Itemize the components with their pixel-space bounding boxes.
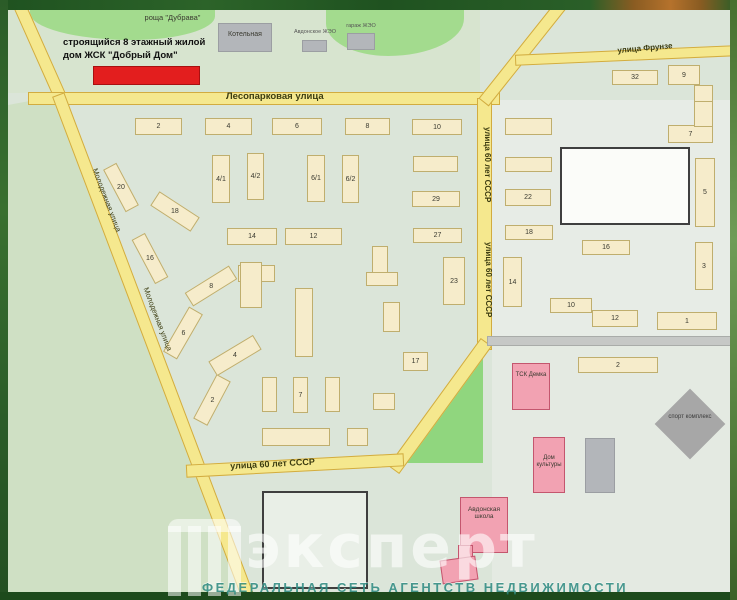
building-house xyxy=(262,428,330,446)
building-32: 32 xyxy=(612,70,658,85)
building-number: 1 xyxy=(685,318,689,325)
building-gray xyxy=(347,33,375,50)
building-6-1: 6/1 xyxy=(307,155,325,202)
sport-complex-label: спорт комплекс xyxy=(661,414,719,421)
garazh-zheo-label: гараж ЖЭО xyxy=(340,23,382,29)
tsk-label: ТСК Демка xyxy=(509,372,553,379)
building-22: 22 xyxy=(505,189,551,206)
grove-label: роща "Дубрава" xyxy=(135,14,210,23)
frame-right-forest xyxy=(730,0,737,600)
building-6-2: 6/2 xyxy=(342,155,359,203)
building-number: 6/2 xyxy=(346,176,356,183)
street-label-60-let-sssr-upper: улица 60 лет СССР xyxy=(483,127,492,202)
building-7: 7 xyxy=(668,125,713,143)
watermark-logo-arch xyxy=(168,519,241,532)
building-5: 5 xyxy=(695,158,715,227)
building-number: 7 xyxy=(689,131,693,138)
street-label-lesoparkovaya: Лесопарковая улица xyxy=(226,91,324,102)
building-number: 7 xyxy=(299,392,303,399)
street-label-60-let-sssr-lower: улица 60 лет СССР xyxy=(484,242,493,317)
building-2: 2 xyxy=(578,357,658,373)
building-4: 4 xyxy=(208,335,261,376)
building-pink xyxy=(512,363,550,410)
building-4-1: 4/1 xyxy=(212,155,230,203)
building-house xyxy=(505,118,552,135)
building-6: 6 xyxy=(163,306,203,359)
building-9: 9 xyxy=(668,65,700,85)
building-number: 8 xyxy=(209,283,213,290)
building-number: 27 xyxy=(434,232,442,239)
building-house xyxy=(373,393,395,410)
building-number: 4/1 xyxy=(216,176,226,183)
frame-top-forest xyxy=(0,0,737,10)
building-number: 22 xyxy=(524,194,532,201)
building-number: 2 xyxy=(616,362,620,369)
building-6: 6 xyxy=(272,118,322,135)
building-number: 2 xyxy=(210,397,214,404)
kotelnaya-label: Котельная xyxy=(218,31,272,39)
building-house xyxy=(325,377,340,412)
building-10: 10 xyxy=(412,119,462,135)
building-8: 8 xyxy=(345,118,390,135)
building-number: 17 xyxy=(412,358,420,365)
building-number: 10 xyxy=(433,124,441,131)
building-23: 23 xyxy=(443,257,465,305)
building-number: 12 xyxy=(611,315,619,322)
building-house xyxy=(262,377,277,412)
building-14: 14 xyxy=(503,257,522,307)
building-2: 2 xyxy=(193,374,231,426)
building-4-2: 4/2 xyxy=(247,153,264,200)
building-number: 10 xyxy=(567,302,575,309)
building-house xyxy=(694,100,713,127)
legend-line2: дом ЖСК "Добрый Дом" xyxy=(63,51,233,62)
building-house xyxy=(505,157,552,172)
dom-kultury-label: Дом культуры xyxy=(531,455,567,469)
building-number: 32 xyxy=(631,74,639,81)
building-18: 18 xyxy=(505,225,553,240)
building-1: 1 xyxy=(657,312,717,330)
building-17: 17 xyxy=(403,352,428,371)
building-27: 27 xyxy=(413,228,462,243)
building-number: 16 xyxy=(146,255,154,262)
legend-line1: строящийся 8 этажный жилой xyxy=(63,38,233,49)
building-8: 8 xyxy=(185,265,238,306)
building-number: 18 xyxy=(171,208,179,215)
building-12: 12 xyxy=(592,310,638,327)
building-lot xyxy=(560,147,690,225)
frame-left-forest xyxy=(0,0,8,600)
building-house xyxy=(347,428,368,446)
building-number: 6/1 xyxy=(311,175,321,182)
building-number: 20 xyxy=(117,184,125,191)
avdon-zheo-label: Авдонское ЖЭО xyxy=(288,29,342,35)
building-number: 12 xyxy=(310,233,318,240)
building-house xyxy=(694,85,713,102)
building-number: 4/2 xyxy=(251,173,261,180)
building-red xyxy=(93,66,200,85)
building-house xyxy=(372,246,388,274)
building-12: 12 xyxy=(285,228,342,245)
building-number: 14 xyxy=(509,279,517,286)
building-house xyxy=(366,272,398,286)
building-2: 2 xyxy=(135,118,182,135)
building-18: 18 xyxy=(150,191,200,231)
building-10: 10 xyxy=(550,298,592,313)
building-house xyxy=(383,302,400,332)
building-number: 5 xyxy=(703,189,707,196)
building-number: 14 xyxy=(248,233,256,240)
building-4: 4 xyxy=(205,118,252,135)
avdon-map: Лесопарковая улица улица Фрунзе улица 60… xyxy=(0,0,737,600)
building-16: 16 xyxy=(132,233,169,284)
watermark-brand: эксперт xyxy=(245,512,538,582)
building-16: 16 xyxy=(582,240,630,255)
building-house xyxy=(240,262,262,308)
building-14: 14 xyxy=(227,228,277,245)
building-house xyxy=(295,288,313,357)
building-3: 3 xyxy=(695,242,713,290)
building-number: 6 xyxy=(295,123,299,130)
building-number: 18 xyxy=(525,229,533,236)
building-7: 7 xyxy=(293,377,308,413)
building-number: 2 xyxy=(157,123,161,130)
building-house xyxy=(413,156,458,172)
building-number: 4 xyxy=(227,123,231,130)
building-number: 8 xyxy=(366,123,370,130)
building-number: 23 xyxy=(450,278,458,285)
building-number: 29 xyxy=(432,196,440,203)
building-number: 16 xyxy=(602,244,610,251)
watermark-tagline: ФЕДЕРАЛЬНАЯ СЕТЬ АГЕНТСТВ НЕДВИЖИМОСТИ xyxy=(202,580,628,595)
building-29: 29 xyxy=(412,191,460,207)
building-gray xyxy=(585,438,615,493)
building-gray xyxy=(302,40,327,52)
road-gray-east xyxy=(487,336,737,346)
building-number: 4 xyxy=(233,352,237,359)
building-number: 3 xyxy=(702,263,706,270)
building-number: 6 xyxy=(181,330,185,337)
building-number: 9 xyxy=(682,72,686,79)
